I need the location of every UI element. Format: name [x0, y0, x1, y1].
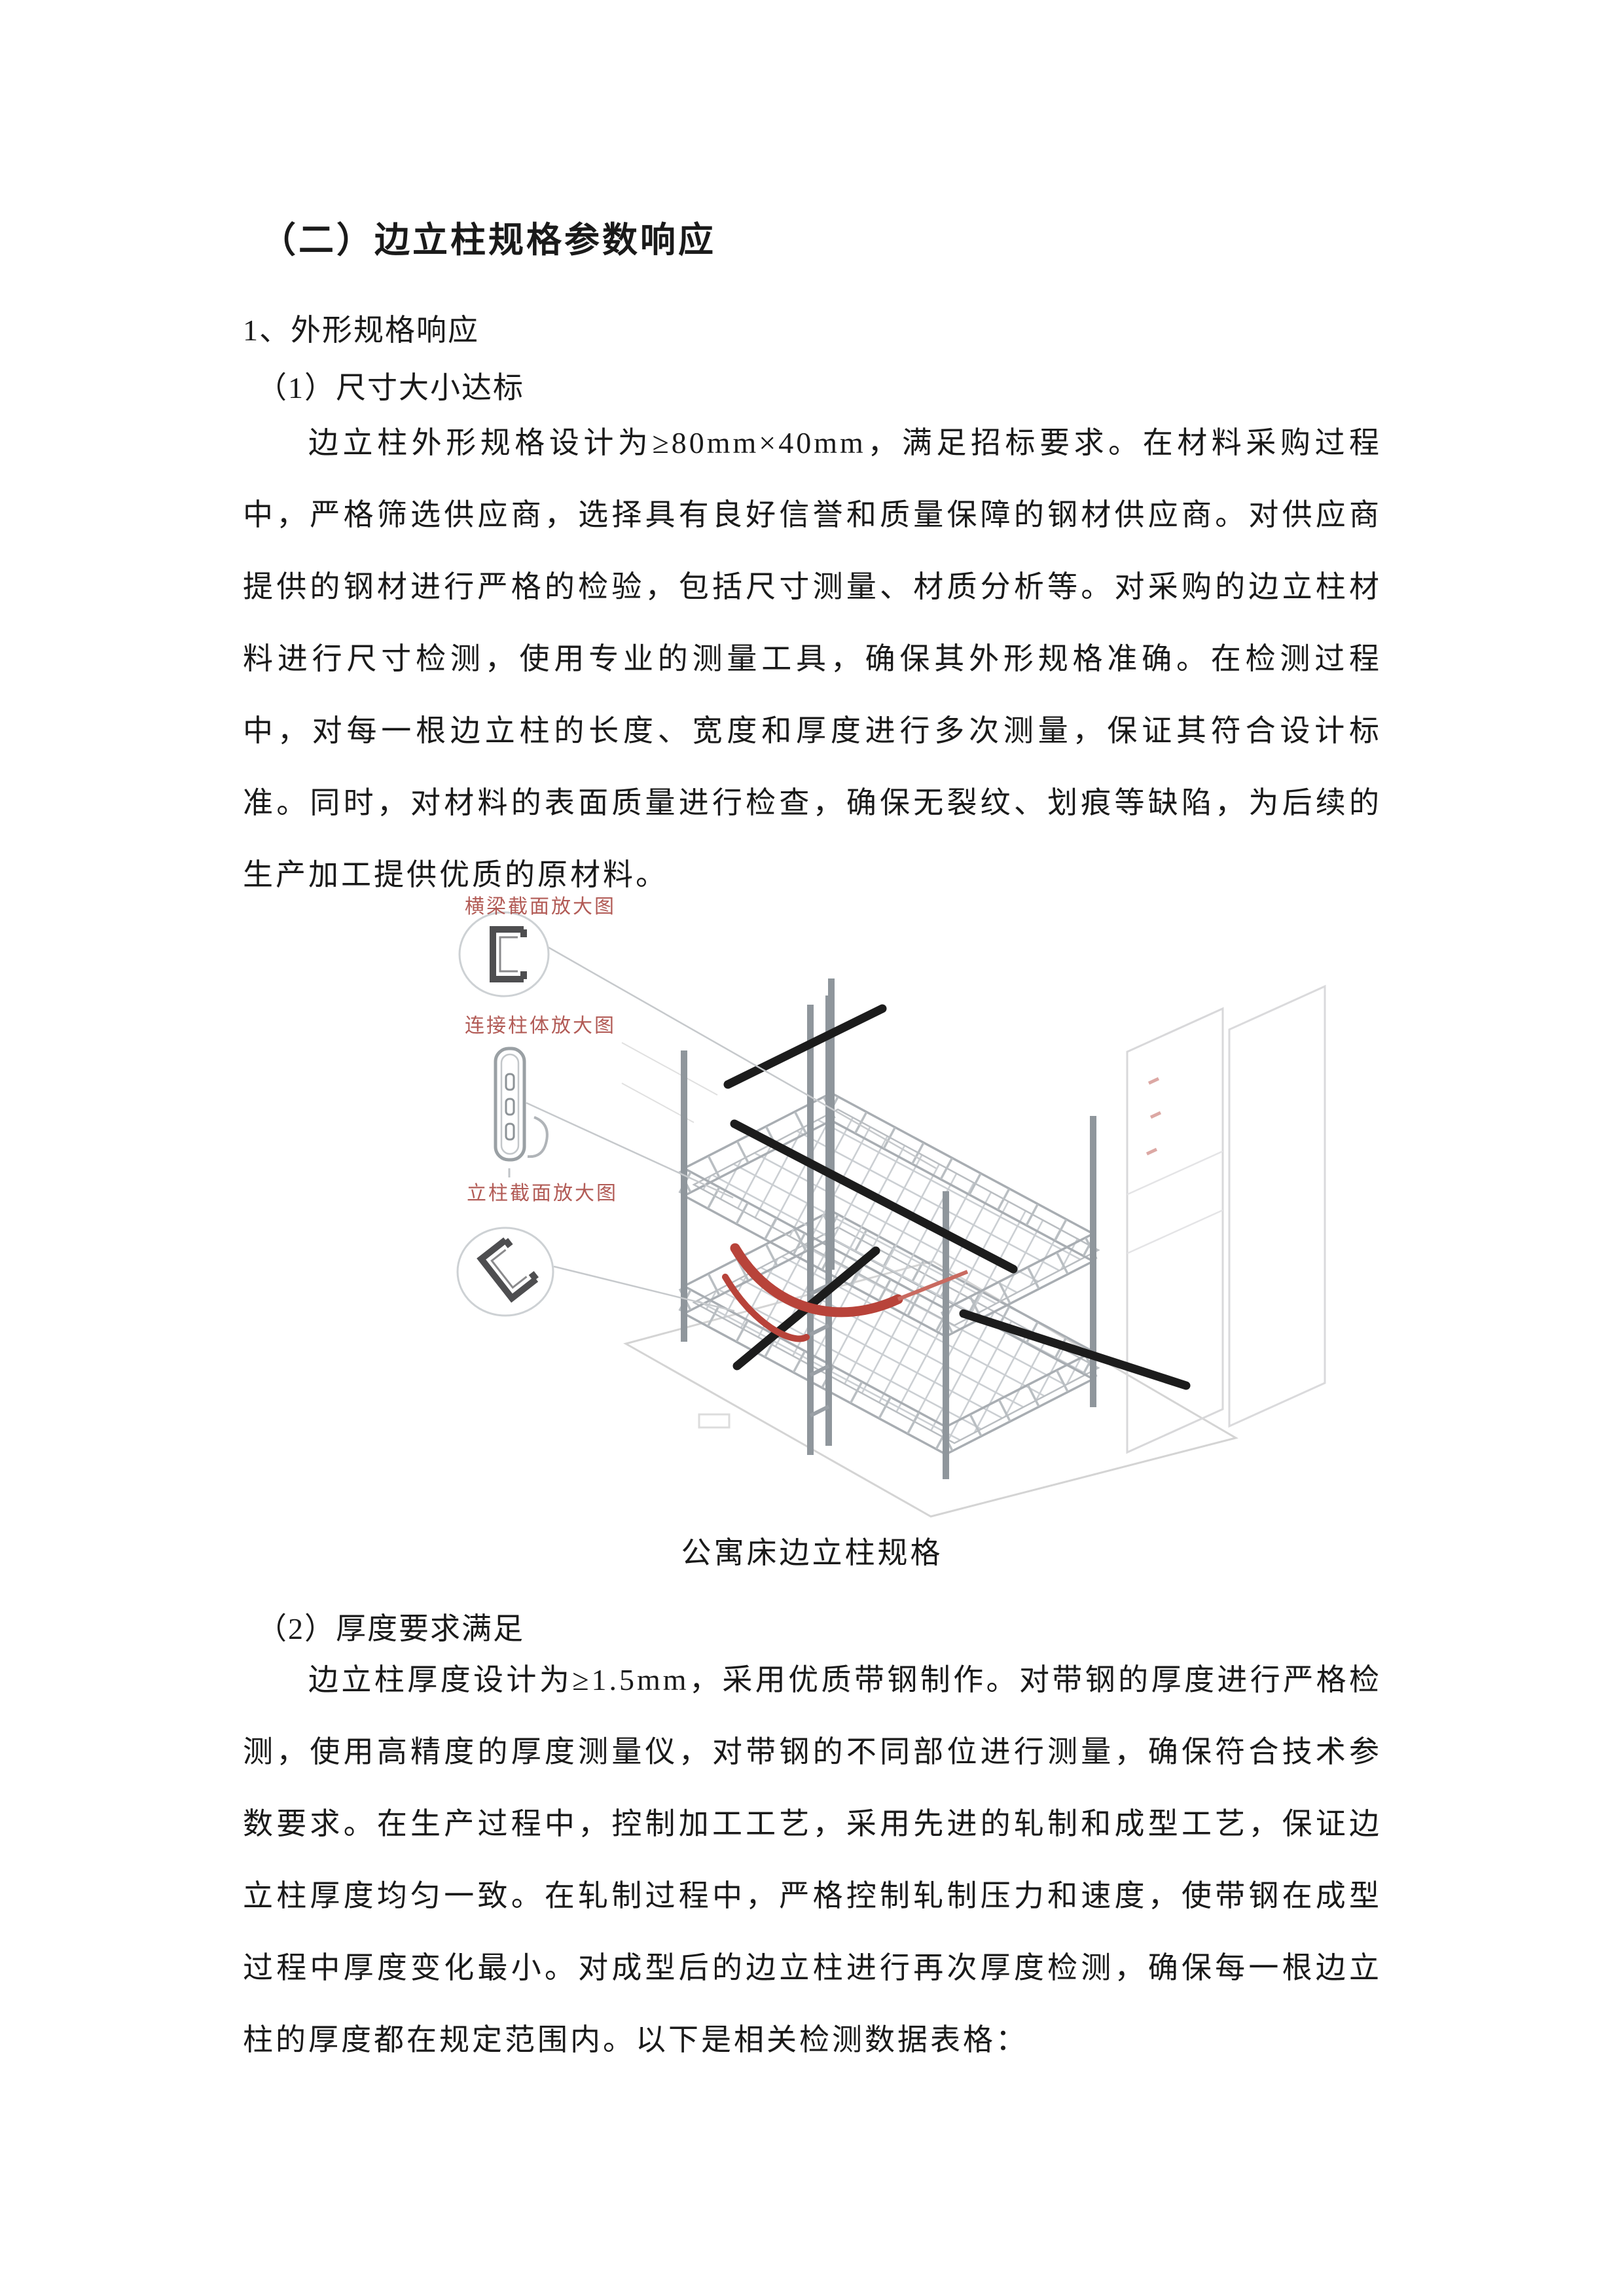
- document-page: （二）边立柱规格参数响应 1、外形规格响应 （1）尺寸大小达标 边立柱外形规格设…: [0, 0, 1624, 2296]
- callout-beam-section: [460, 912, 549, 996]
- hook-bracket-icon: [528, 1117, 547, 1157]
- figure-caption: 公寓床边立柱规格: [0, 1529, 1624, 1572]
- heading-size-compliance: （1）尺寸大小达标: [257, 364, 524, 407]
- callout-column-section: [458, 1228, 553, 1316]
- paragraph-size-inspection: 边立柱外形规格设计为≥80mm×40mm，满足招标要求。在材料采购过程中，严格筛…: [243, 407, 1382, 911]
- label-column-section: 立柱截面放大图: [467, 1183, 618, 1204]
- bunk-bed-technical-drawing: 横梁截面放大图 连接柱体放大图 立柱截面放大图: [275, 887, 1362, 1532]
- label-column-body: 连接柱体放大图: [465, 1015, 616, 1037]
- heading-outline-spec: 1、外形规格响应: [243, 306, 479, 350]
- heading-thickness-compliance: （2）厚度要求满足: [257, 1605, 524, 1648]
- section-title: （二）边立柱规格参数响应: [261, 211, 716, 262]
- paragraph-thickness-inspection: 边立柱厚度设计为≥1.5mm，采用优质带钢制作。对带钢的厚度进行严格检测，使用高…: [243, 1644, 1382, 2076]
- figure-bunk-bed-diagram: 横梁截面放大图 连接柱体放大图 立柱截面放大图: [275, 887, 1362, 1532]
- label-beam-section: 横梁截面放大图: [465, 896, 616, 918]
- side-panels: [1127, 986, 1325, 1452]
- background-lines: [622, 1043, 717, 1122]
- callout-column-body: [496, 1049, 547, 1177]
